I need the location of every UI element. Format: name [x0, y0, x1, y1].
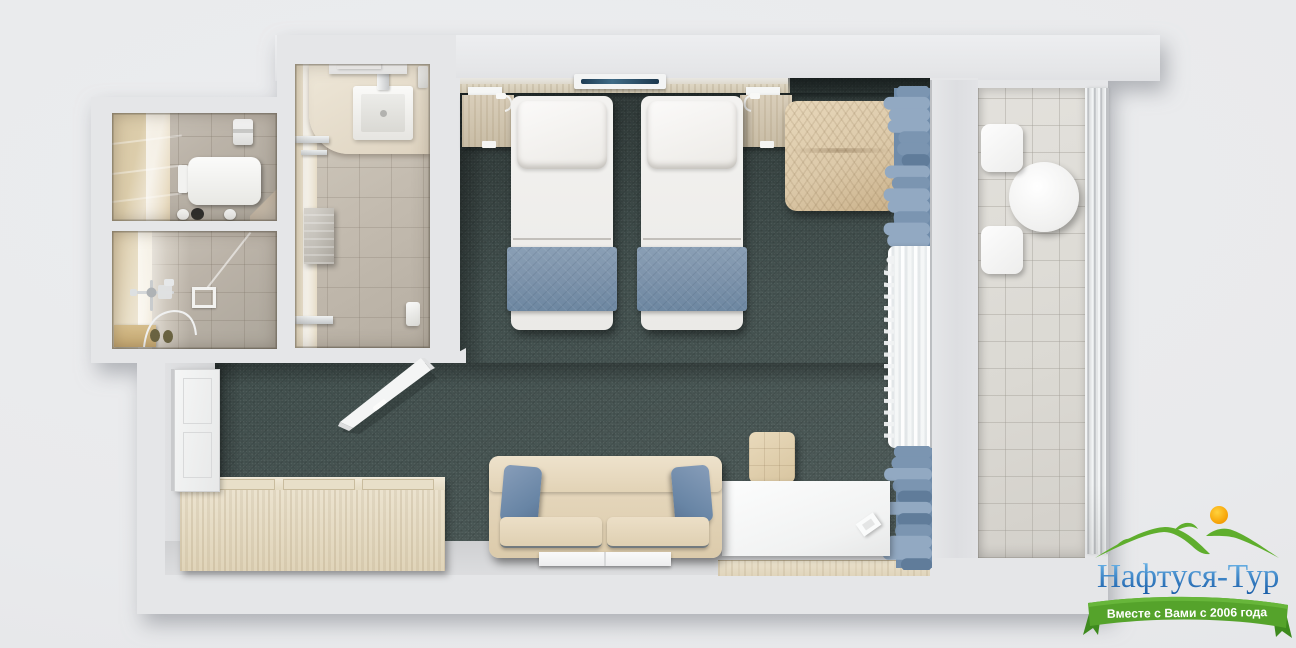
svg-text:Вместе с Вами с 2006 года: Вместе с Вами с 2006 года — [1107, 605, 1268, 621]
